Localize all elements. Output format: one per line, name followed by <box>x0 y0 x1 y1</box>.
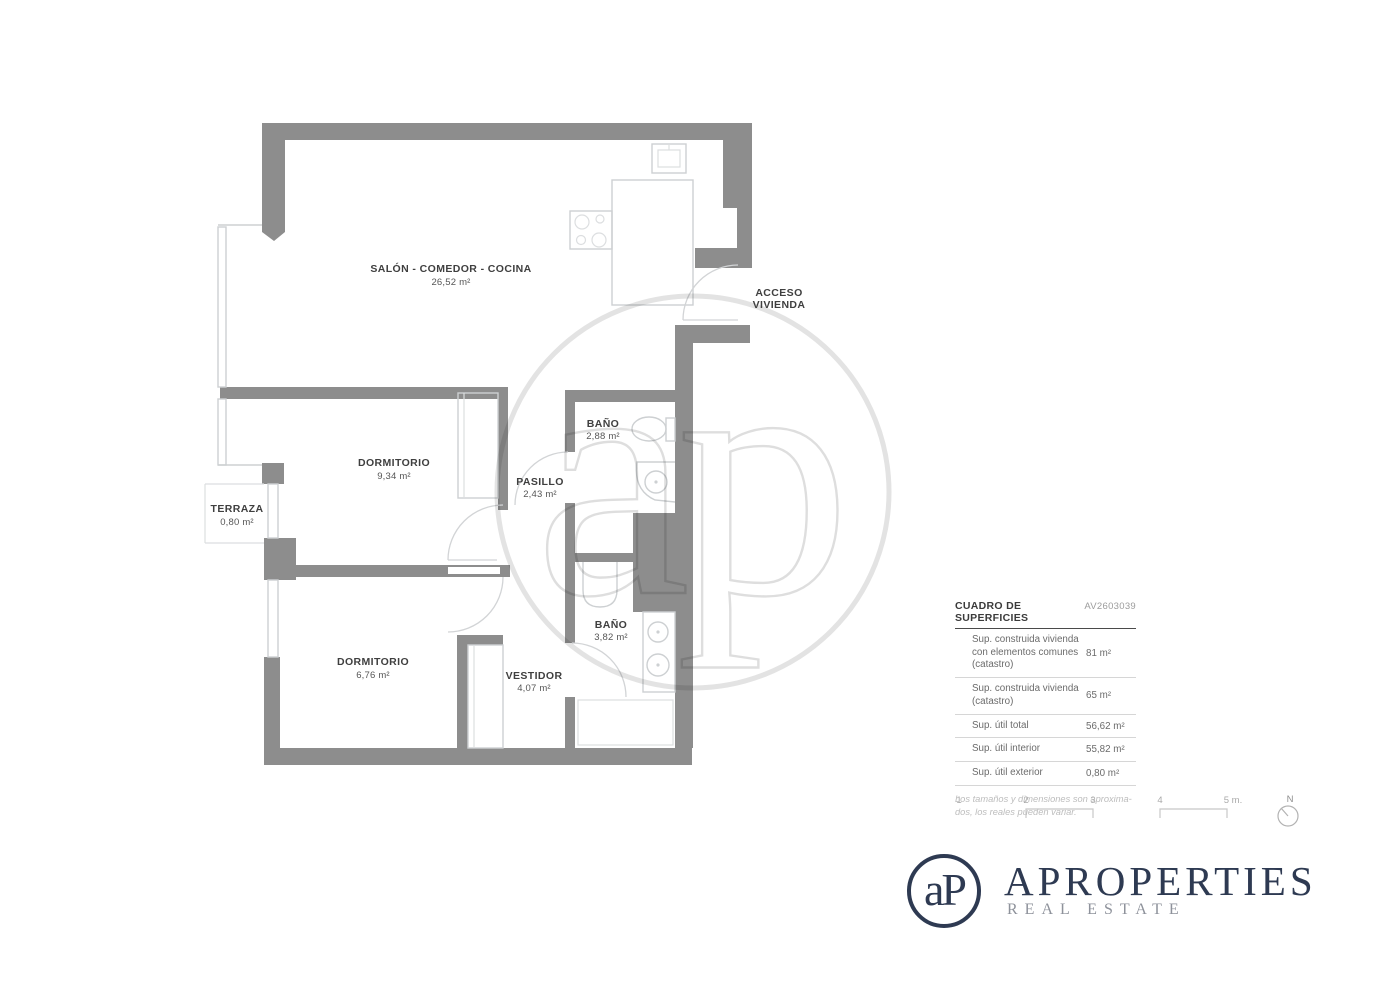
svg-text:4,07 m²: 4,07 m² <box>517 683 551 694</box>
room-label-dormitorio1: DORMITORIO <box>358 457 430 469</box>
bedroom2-door <box>448 577 503 632</box>
bedroom1-door <box>448 505 503 560</box>
surface-table: CUADRO DE SUPERFICIES AV2603039 Sup. con… <box>955 600 1136 820</box>
north-label: N <box>1287 794 1294 805</box>
svg-text:5 m.: 5 m. <box>1224 795 1242 806</box>
table-row: Sup. útil total 56,62 m² <box>955 715 1136 739</box>
windows <box>205 225 278 657</box>
svg-text:9,34 m²: 9,34 m² <box>377 471 411 482</box>
room-label-bano1: BAÑO <box>587 417 620 430</box>
svg-text:6,76 m²: 6,76 m² <box>356 670 390 681</box>
room-label-terraza: TERRAZA <box>211 503 264 515</box>
svg-text:ap: ap <box>535 281 840 670</box>
svg-text:2,43 m²: 2,43 m² <box>523 489 557 500</box>
north-indicator: N <box>1278 794 1298 826</box>
svg-text:26,52 m²: 26,52 m² <box>431 277 470 288</box>
brand-tagline: REAL ESTATE <box>1007 902 1186 918</box>
room-label-bano2: BAÑO <box>595 618 628 631</box>
table-row: Sup. útil interior 55,82 m² <box>955 738 1136 762</box>
shower-tray <box>578 700 673 745</box>
table-row: Sup. útil exterior 0,80 m² <box>955 762 1136 786</box>
room-label-dormitorio2: DORMITORIO <box>337 656 409 668</box>
logo-circle: aP <box>907 854 981 928</box>
room-label-vestidor: VESTIDOR <box>506 670 563 682</box>
svg-text:VIVIENDA: VIVIENDA <box>753 299 806 311</box>
logo-monogram: aP <box>924 867 964 913</box>
svg-text:3,82 m²: 3,82 m² <box>594 632 628 643</box>
cooktop <box>570 211 612 249</box>
table-row: Sup. construida vivienda (catastro) 65 m… <box>955 678 1136 714</box>
table-row: Sup. construida vivienda con elementos c… <box>955 629 1136 678</box>
room-label-pasillo: PASILLO <box>516 476 564 488</box>
entrance-label: ACCESO <box>755 287 802 299</box>
disclaimer-note: Los tamaños y dimensiones son aproxima- … <box>955 793 1136 820</box>
brand-name: APROPERTIES <box>1004 861 1317 902</box>
room-label-salon: SALÓN - COMEDOR - COCINA <box>370 262 531 275</box>
reference-code: AV2603039 <box>1084 601 1136 612</box>
vestidor-closet <box>468 645 503 748</box>
floor-plan: ap SALÓN - COMEDOR - COCINA 26,52 m² DOR… <box>0 0 1400 990</box>
floorplan-page: ap SALÓN - COMEDOR - COCINA 26,52 m² DOR… <box>0 0 1400 990</box>
surface-table-header: CUADRO DE SUPERFICIES AV2603039 <box>955 600 1136 629</box>
svg-text:2,88 m²: 2,88 m² <box>586 431 620 442</box>
svg-text:4: 4 <box>1157 795 1162 806</box>
surface-table-title: CUADRO DE SUPERFICIES <box>955 600 1084 624</box>
svg-text:0,80 m²: 0,80 m² <box>220 517 254 528</box>
